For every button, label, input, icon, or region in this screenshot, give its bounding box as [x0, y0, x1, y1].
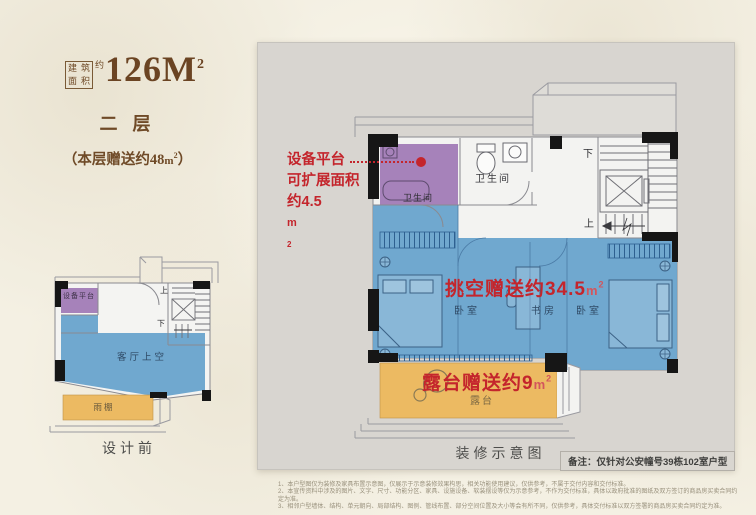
small-stair-down-label: 下	[157, 318, 165, 329]
floor-title: 二层	[40, 110, 210, 136]
callout-line3: 约4.5m2	[287, 192, 360, 260]
callout-line2: 可扩展面积	[287, 171, 360, 192]
equipment-platform-callout: 设备平台 可扩展面积 约4.5m2	[287, 150, 360, 260]
terrace-bonus-sup: 2	[546, 374, 552, 384]
approx-label: 约	[95, 58, 104, 71]
callout-leader-line	[350, 161, 414, 163]
stair-up-label: 上	[584, 215, 594, 230]
callout-unit: m	[287, 213, 360, 234]
callout-line3-prefix: 约4.5	[287, 192, 360, 213]
room-label-bedroom-left: 卧室	[445, 302, 489, 317]
floorplan-poster: { "title_block": { "seal_rows": [["建","筑…	[0, 0, 756, 515]
room-label-terrace: 露台	[460, 392, 504, 407]
stair-down-label: 下	[583, 145, 593, 160]
terrace-bonus-label: 露台赠送约9m2	[422, 368, 552, 395]
callout-line1: 设备平台	[287, 150, 360, 171]
room-label-bath-right: 卫生间	[466, 170, 520, 185]
remark-note: 备注：仅针对公安幢号39栋102室户型	[560, 451, 735, 471]
seal-char: 建	[66, 62, 79, 75]
small-label-equipment-platform: 设备平台	[56, 291, 102, 301]
void-bonus-label: 挑空赠送约34.5m2	[445, 274, 605, 301]
seal-char: 筑	[79, 62, 92, 75]
area-sup: 2	[197, 57, 205, 72]
void-bonus-sup: 2	[599, 280, 605, 290]
room-label-bedroom-right: 卧室	[567, 302, 611, 317]
seal-char: 积	[79, 75, 92, 88]
small-label-living-void: 客厅上空	[106, 349, 178, 363]
callout-unit-sup: 2	[287, 240, 291, 249]
terrace-bonus-text: 露台赠送约9	[422, 373, 534, 394]
disclaimer-fineprint: 1、本户型图仅为装修及家具布置示意图，仅展示于示意装修效果构思，相关功能使用建议…	[278, 482, 743, 512]
small-plan-caption: 设计前	[83, 438, 175, 458]
floor-bonus-note: （本层赠送约48m2）	[35, 148, 220, 169]
bonus-suffix: ）	[178, 152, 193, 168]
small-stair-up-label: 上	[160, 285, 168, 296]
area-headline: 126M2	[105, 48, 205, 90]
void-bonus-text: 挑空赠送约34.5	[445, 279, 586, 300]
main-plan-caption: 装修示意图	[428, 443, 573, 463]
building-area-seal: 建 筑 面 积	[65, 61, 93, 89]
room-label-study: 书房	[522, 302, 566, 317]
bonus-prefix: （本层赠送约48	[63, 152, 165, 168]
seal-char: 面	[66, 75, 79, 88]
fineprint-line: 3、相邻户型墙体、结构、单元朝向、局部结构、图例、管线布置、部分空间位置及大小等…	[278, 504, 743, 511]
callout-dot	[416, 157, 426, 167]
small-label-canopy: 雨棚	[86, 401, 122, 413]
room-label-bath-left: 卫生间	[396, 191, 440, 204]
terrace-bonus-unit: m	[534, 377, 547, 392]
fineprint-line: 2、本宣传资料中涉及的图片、文字、尺寸、功能分区、家具、设施设备、软装摆设等仅为…	[278, 489, 743, 504]
bonus-unit: m	[164, 155, 173, 167]
void-bonus-unit: m	[586, 283, 599, 298]
area-number: 126M	[105, 49, 197, 89]
